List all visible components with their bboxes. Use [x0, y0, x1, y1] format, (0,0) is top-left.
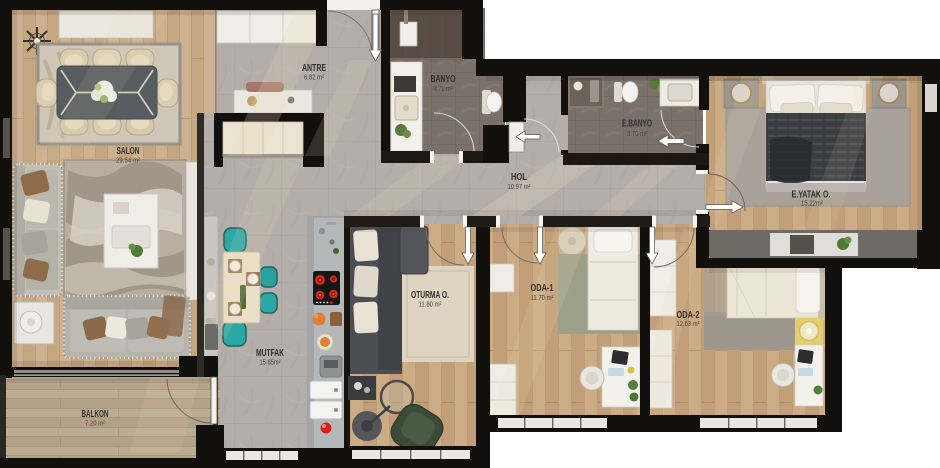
svg-text:E.BANYO: E.BANYO	[622, 118, 652, 130]
svg-text:3.70 m²: 3.70 m²	[627, 129, 647, 138]
svg-text:11.70 m²: 11.70 m²	[531, 293, 554, 302]
svg-text:29.54 m²: 29.54 m²	[116, 156, 140, 165]
svg-text:10.97 m²: 10.97 m²	[508, 182, 531, 191]
svg-text:4.71 m²: 4.71 m²	[434, 84, 453, 93]
svg-text:15.65m²: 15.65m²	[260, 358, 281, 367]
svg-text:12.63 m²: 12.63 m²	[677, 319, 700, 328]
svg-text:11.80 m²: 11.80 m²	[419, 300, 442, 309]
svg-text:7.20 m²: 7.20 m²	[85, 419, 105, 428]
svg-text:15.22m²: 15.22m²	[801, 199, 823, 208]
svg-text:6.82 m²: 6.82 m²	[304, 73, 324, 82]
